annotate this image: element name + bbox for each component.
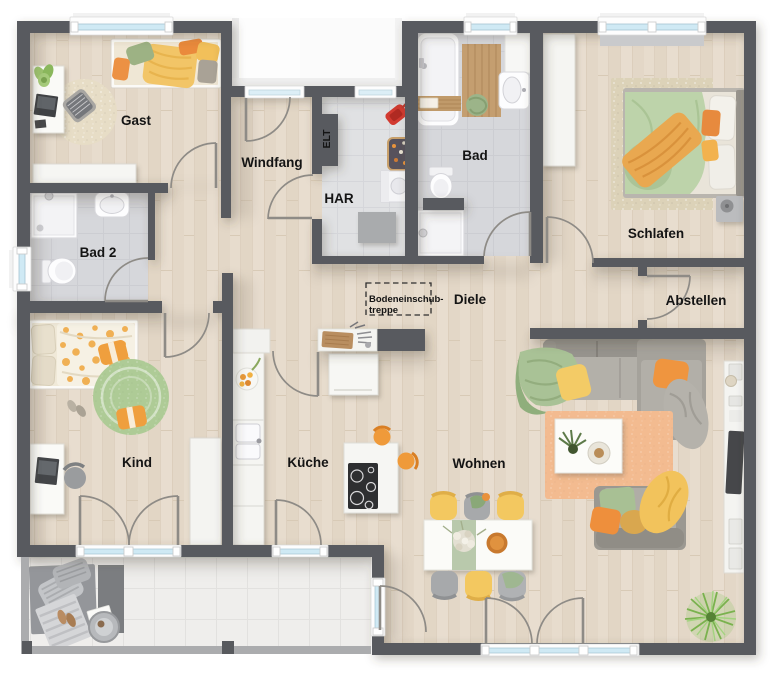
- svg-text:Bad 2: Bad 2: [80, 245, 117, 260]
- svg-text:Abstellen: Abstellen: [666, 293, 727, 308]
- svg-text:treppe: treppe: [369, 305, 398, 316]
- svg-text:Wohnen: Wohnen: [453, 456, 506, 471]
- svg-text:Schlafen: Schlafen: [628, 226, 684, 241]
- svg-text:Bodeneinschub-: Bodeneinschub-: [369, 294, 443, 305]
- svg-text:HAR: HAR: [324, 191, 353, 206]
- svg-text:Diele: Diele: [454, 292, 487, 307]
- svg-text:Küche: Küche: [287, 455, 329, 470]
- svg-text:Kind: Kind: [122, 455, 152, 470]
- svg-text:Windfang: Windfang: [241, 155, 302, 170]
- svg-text:Gast: Gast: [121, 113, 152, 128]
- svg-text:Bad: Bad: [462, 148, 488, 163]
- svg-text:ELT: ELT: [321, 129, 333, 149]
